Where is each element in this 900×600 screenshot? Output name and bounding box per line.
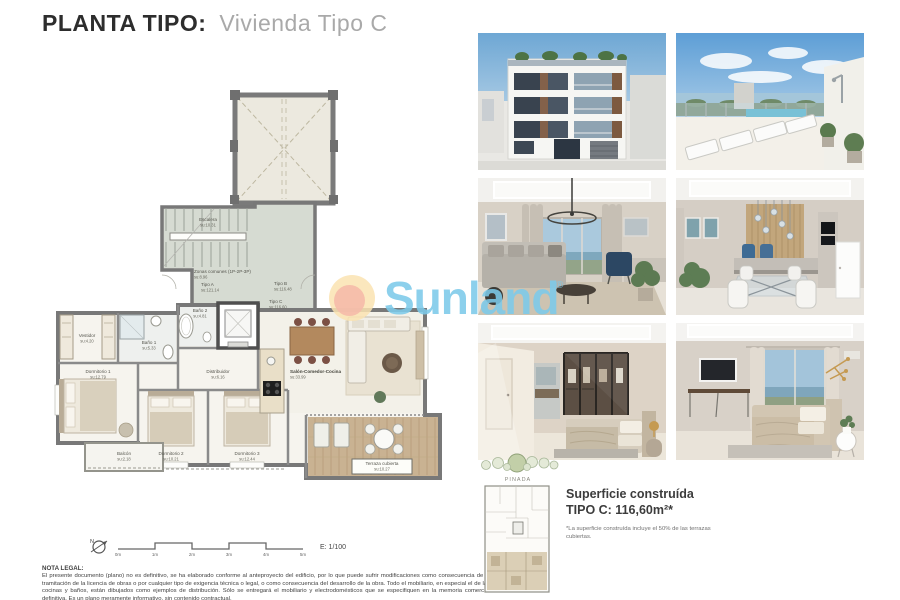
label-salon: Salón-Comedor-Cocina [290, 369, 341, 374]
scale-ratio-label: E: 1/100 [320, 544, 346, 551]
surface-footnote: *La superficie construída incluye el 50%… [566, 526, 716, 542]
floor-plan-drawing: Escalera su:10.31 Zonas comunes (1P-2P-3… [50, 85, 460, 535]
keyplan-outline [485, 486, 549, 592]
plan-elevator [218, 303, 258, 348]
label-dormitorio-1: Dormitorio 1 [85, 369, 110, 374]
label-bano-1: Baño 1 [142, 340, 157, 345]
svg-text:N: N [90, 539, 94, 545]
surface-title: Superficie construída [566, 487, 776, 503]
scale-ticks: 0m 1m 2m 3m 4m 5m [115, 552, 307, 557]
svg-text:su:116.60: su:116.60 [269, 305, 287, 310]
photo-dining-kitchen [676, 178, 864, 315]
svg-text:4m: 4m [263, 552, 270, 557]
scale-bar-drawing: N 0m 1m 2m 3m 4m 5m E: 1/100 [88, 536, 368, 558]
page-title-sub: Vivienda Tipo C [219, 10, 387, 36]
keyplan-area-label: PINADA [505, 477, 531, 483]
svg-text:su:12.44: su:12.44 [239, 457, 255, 462]
legal-note: NOTA LEGAL: El presente documento (plano… [42, 565, 490, 600]
photo-bedroom-seaview [676, 323, 864, 460]
page-title-main: PLANTA TIPO: [42, 10, 206, 36]
svg-text:su:10.31: su:10.31 [200, 223, 216, 228]
label-escalera: Escalera [199, 217, 217, 222]
photo-grid [478, 33, 864, 460]
svg-text:su:4.81: su:4.81 [193, 314, 207, 319]
svg-text:su:12.79: su:12.79 [90, 375, 106, 380]
svg-text:5m: 5m [300, 552, 307, 557]
label-terraza: Terraza cubierta [366, 461, 399, 466]
label-tipo-b: Tipo B [274, 281, 287, 286]
label-bano-2: Baño 2 [193, 308, 208, 313]
svg-text:su:2.18: su:2.18 [117, 457, 131, 462]
svg-text:su:121.14: su:121.14 [201, 288, 220, 293]
surface-summary: Superficie construída TIPO C: 116,60m²* … [566, 487, 776, 542]
key-plan: PINADA [476, 452, 560, 600]
label-dormitorio-3: Dormitorio 3 [234, 451, 259, 456]
photo-living-room [478, 178, 666, 315]
photo-rooftop-terrace [676, 33, 864, 170]
photo-bedroom-dressing [478, 323, 666, 460]
svg-text:0m: 0m [115, 552, 122, 557]
svg-text:2m: 2m [189, 552, 196, 557]
north-compass-icon: N [90, 539, 107, 553]
floor-plan: Escalera su:10.31 Zonas comunes (1P-2P-3… [50, 85, 460, 535]
label-vestidor: Vestidor [79, 333, 96, 338]
label-dormitorio-2: Dormitorio 2 [158, 451, 183, 456]
plan-patio [230, 90, 338, 204]
label-balcon: Balcón [117, 451, 131, 456]
label-distribuidor: Distribuidor [206, 369, 230, 374]
svg-text:1m: 1m [152, 552, 159, 557]
brochure-page: PLANTA TIPO: Vivienda Tipo C [0, 0, 900, 600]
page-title: PLANTA TIPO: Vivienda Tipo C [42, 10, 388, 37]
keyplan-trees [482, 454, 559, 472]
svg-text:su:33.99: su:33.99 [290, 375, 306, 380]
svg-text:su:10.27: su:10.27 [374, 467, 390, 472]
surface-value: TIPO C: 116,60m²* [566, 503, 776, 519]
label-zonas-comunes: Zonas comunes (1P-2P-3P) [194, 269, 251, 274]
legal-note-body: El presente documento (plano) no es defi… [42, 573, 490, 600]
photo-building-exterior [478, 33, 666, 170]
label-tipo-a: Tipo A [201, 282, 215, 287]
svg-text:su:10.21: su:10.21 [163, 457, 179, 462]
label-tipo-c: Tipo C [269, 299, 283, 304]
svg-text:su:5.33: su:5.33 [142, 346, 156, 351]
scale-bar: N 0m 1m 2m 3m 4m 5m E: 1/100 [88, 536, 368, 558]
svg-text:su:116.48: su:116.48 [274, 287, 292, 292]
svg-text:3m: 3m [226, 552, 233, 557]
svg-text:su:8.96: su:8.96 [194, 275, 208, 280]
svg-text:su:4.20: su:4.20 [80, 339, 94, 344]
legal-note-title: NOTA LEGAL: [42, 565, 490, 572]
svg-text:su:6.16: su:6.16 [211, 375, 225, 380]
